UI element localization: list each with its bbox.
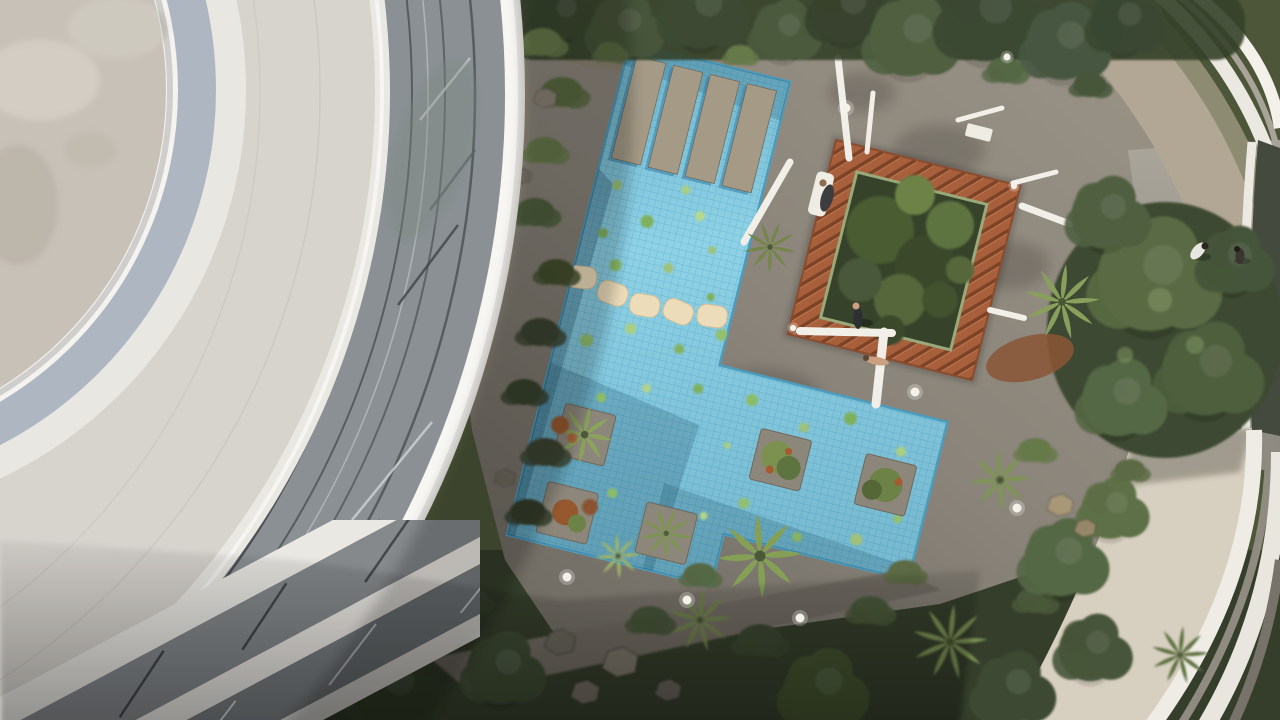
light-dot bbox=[1009, 500, 1025, 516]
light-dot bbox=[559, 569, 575, 585]
light-dot bbox=[907, 384, 923, 400]
light-dot bbox=[792, 610, 808, 626]
light-dot bbox=[838, 100, 854, 116]
aerial-courtyard-rendering bbox=[0, 0, 1280, 720]
scene-canvas bbox=[0, 0, 1280, 720]
light-dot bbox=[1008, 180, 1019, 191]
light-dot bbox=[679, 592, 695, 608]
light-dot bbox=[1001, 51, 1014, 64]
light-dot bbox=[787, 322, 798, 333]
